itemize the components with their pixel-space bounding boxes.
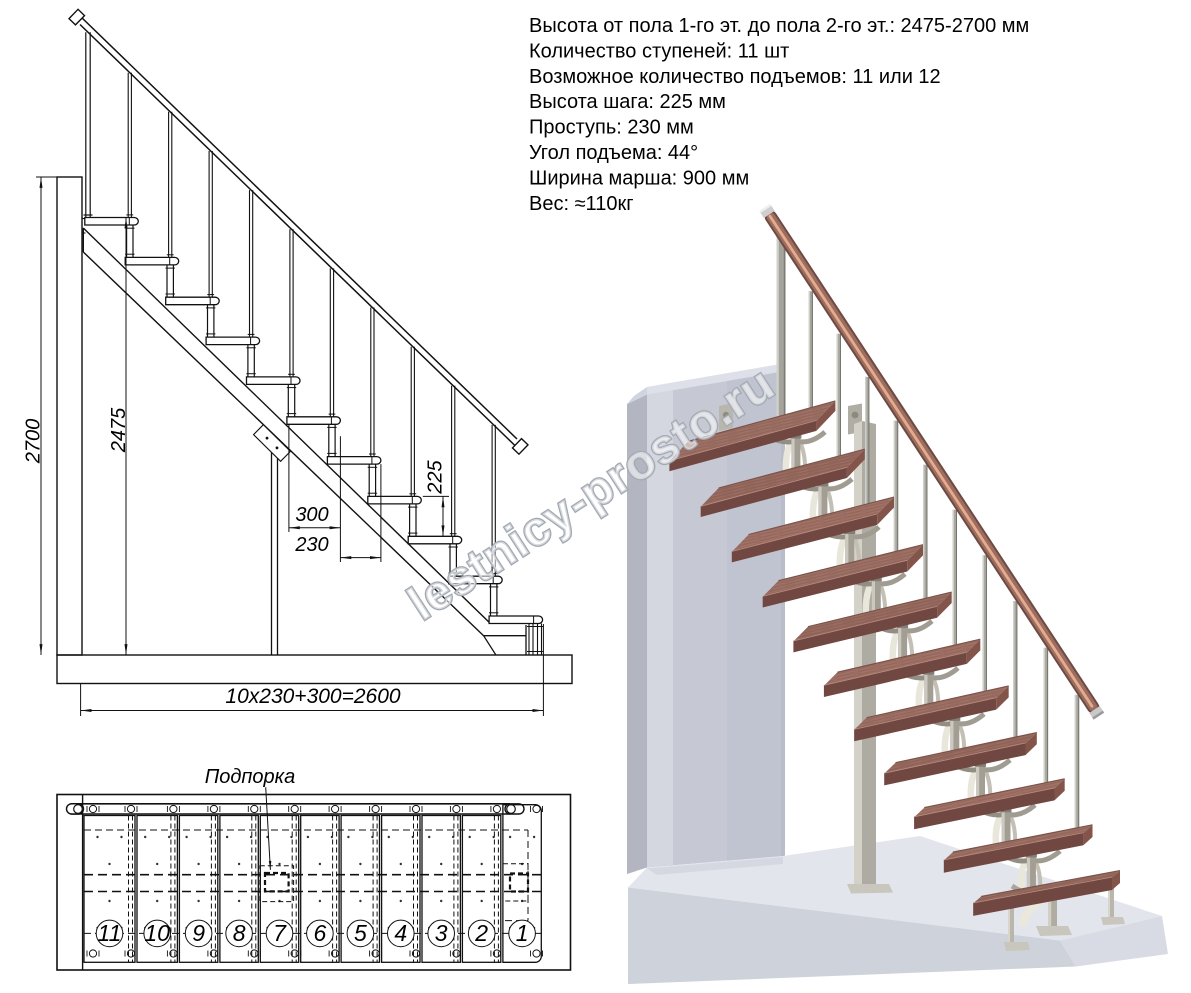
svg-text:Высота шага: 225 мм: Высота шага: 225 мм xyxy=(529,91,726,113)
svg-text:1: 1 xyxy=(516,920,529,946)
svg-text:Ширина марша: 900 мм: Ширина марша: 900 мм xyxy=(529,168,749,190)
svg-text:6: 6 xyxy=(314,920,327,946)
svg-text:10x230+300=2600: 10x230+300=2600 xyxy=(225,685,400,708)
svg-text:2: 2 xyxy=(474,920,488,946)
svg-text:Подпорка: Подпорка xyxy=(205,766,296,788)
svg-text:Проступь: 230 мм: Проступь: 230 мм xyxy=(529,117,694,139)
svg-text:Количество ступеней: 11 шт: Количество ступеней: 11 шт xyxy=(529,40,789,62)
svg-text:230: 230 xyxy=(294,534,328,556)
svg-text:300: 300 xyxy=(295,504,328,526)
svg-text:4: 4 xyxy=(394,920,407,946)
svg-text:2700: 2700 xyxy=(23,419,45,465)
svg-text:Угол подъема: 44°: Угол подъема: 44° xyxy=(529,142,698,164)
svg-text:11: 11 xyxy=(98,920,122,946)
svg-text:7: 7 xyxy=(273,920,287,946)
svg-text:225: 225 xyxy=(425,459,447,494)
svg-text:9: 9 xyxy=(192,920,205,946)
svg-text:8: 8 xyxy=(233,920,246,946)
svg-text:10: 10 xyxy=(144,920,170,946)
svg-text:2475: 2475 xyxy=(108,407,130,453)
svg-text:5: 5 xyxy=(354,920,367,946)
svg-text:Высота от пола 1-го эт. до пол: Высота от пола 1-го эт. до пола 2-го эт.… xyxy=(529,15,1029,37)
svg-text:3: 3 xyxy=(435,920,448,946)
svg-text:Возможное количество подъемов:: Возможное количество подъемов: 11 или 12 xyxy=(529,66,941,88)
svg-text:Вес: ≈110кг: Вес: ≈110кг xyxy=(529,193,633,215)
